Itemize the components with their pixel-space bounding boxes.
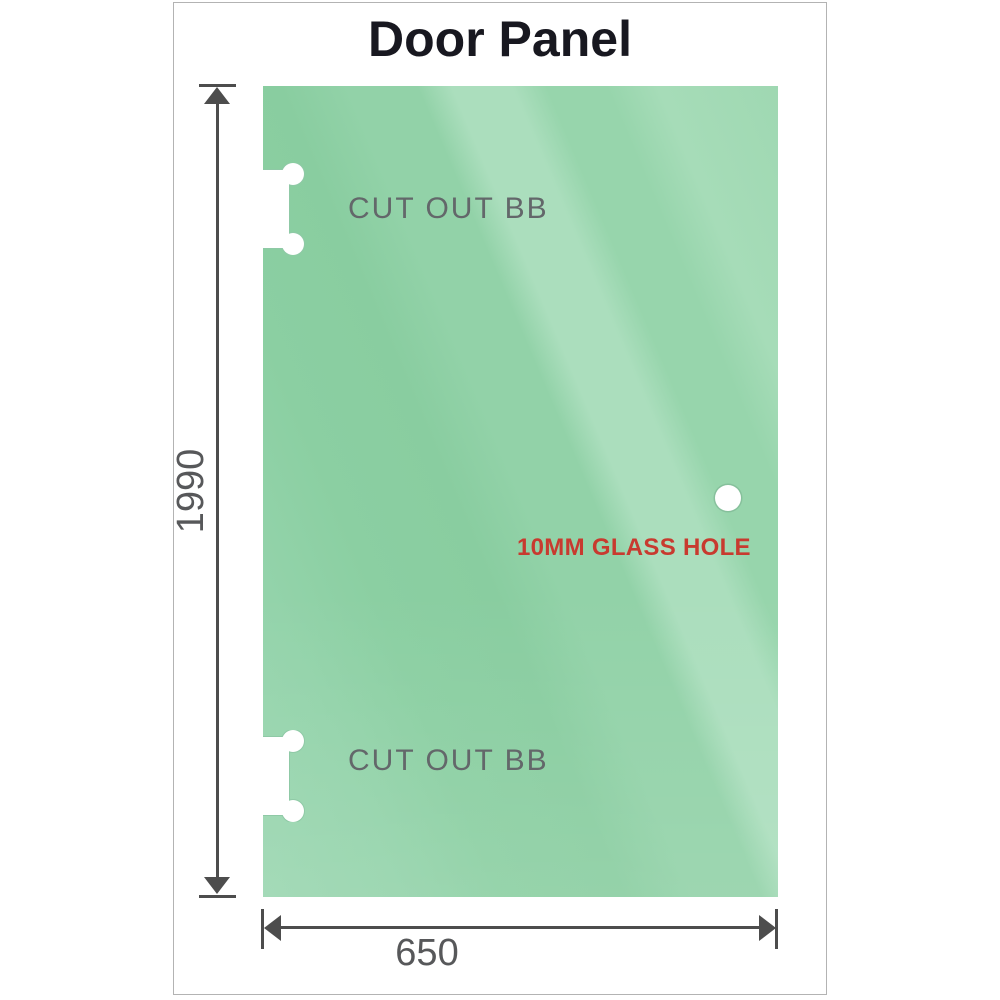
page-title: Door Panel bbox=[173, 12, 827, 67]
glass-hole-label: 10MM GLASS HOLE bbox=[517, 536, 751, 560]
width-dimension-tick-right bbox=[775, 909, 778, 949]
height-dimension-value: 1990 bbox=[171, 441, 211, 541]
width-dimension-arrow-right-icon bbox=[759, 915, 776, 941]
width-dimension-line bbox=[273, 926, 767, 929]
hinge-cutout-top-icon bbox=[263, 163, 307, 255]
width-dimension-value: 650 bbox=[367, 933, 487, 973]
hinge-cutout-bottom-icon bbox=[263, 730, 307, 822]
door-panel-diagram: Door Panel CUT OUT BB CUT OUT BB 10MM G bbox=[0, 0, 1000, 1000]
cutout-label-bottom: CUT OUT BB bbox=[348, 746, 549, 776]
glass-hole-icon bbox=[715, 485, 741, 511]
cutout-label-top: CUT OUT BB bbox=[348, 194, 549, 224]
width-dimension-arrow-left-icon bbox=[264, 915, 281, 941]
height-dimension-arrow-up-icon bbox=[204, 87, 230, 104]
height-dimension-arrow-down-icon bbox=[204, 877, 230, 894]
height-dimension-tick-bottom bbox=[199, 895, 236, 898]
height-dimension-line bbox=[216, 96, 219, 886]
